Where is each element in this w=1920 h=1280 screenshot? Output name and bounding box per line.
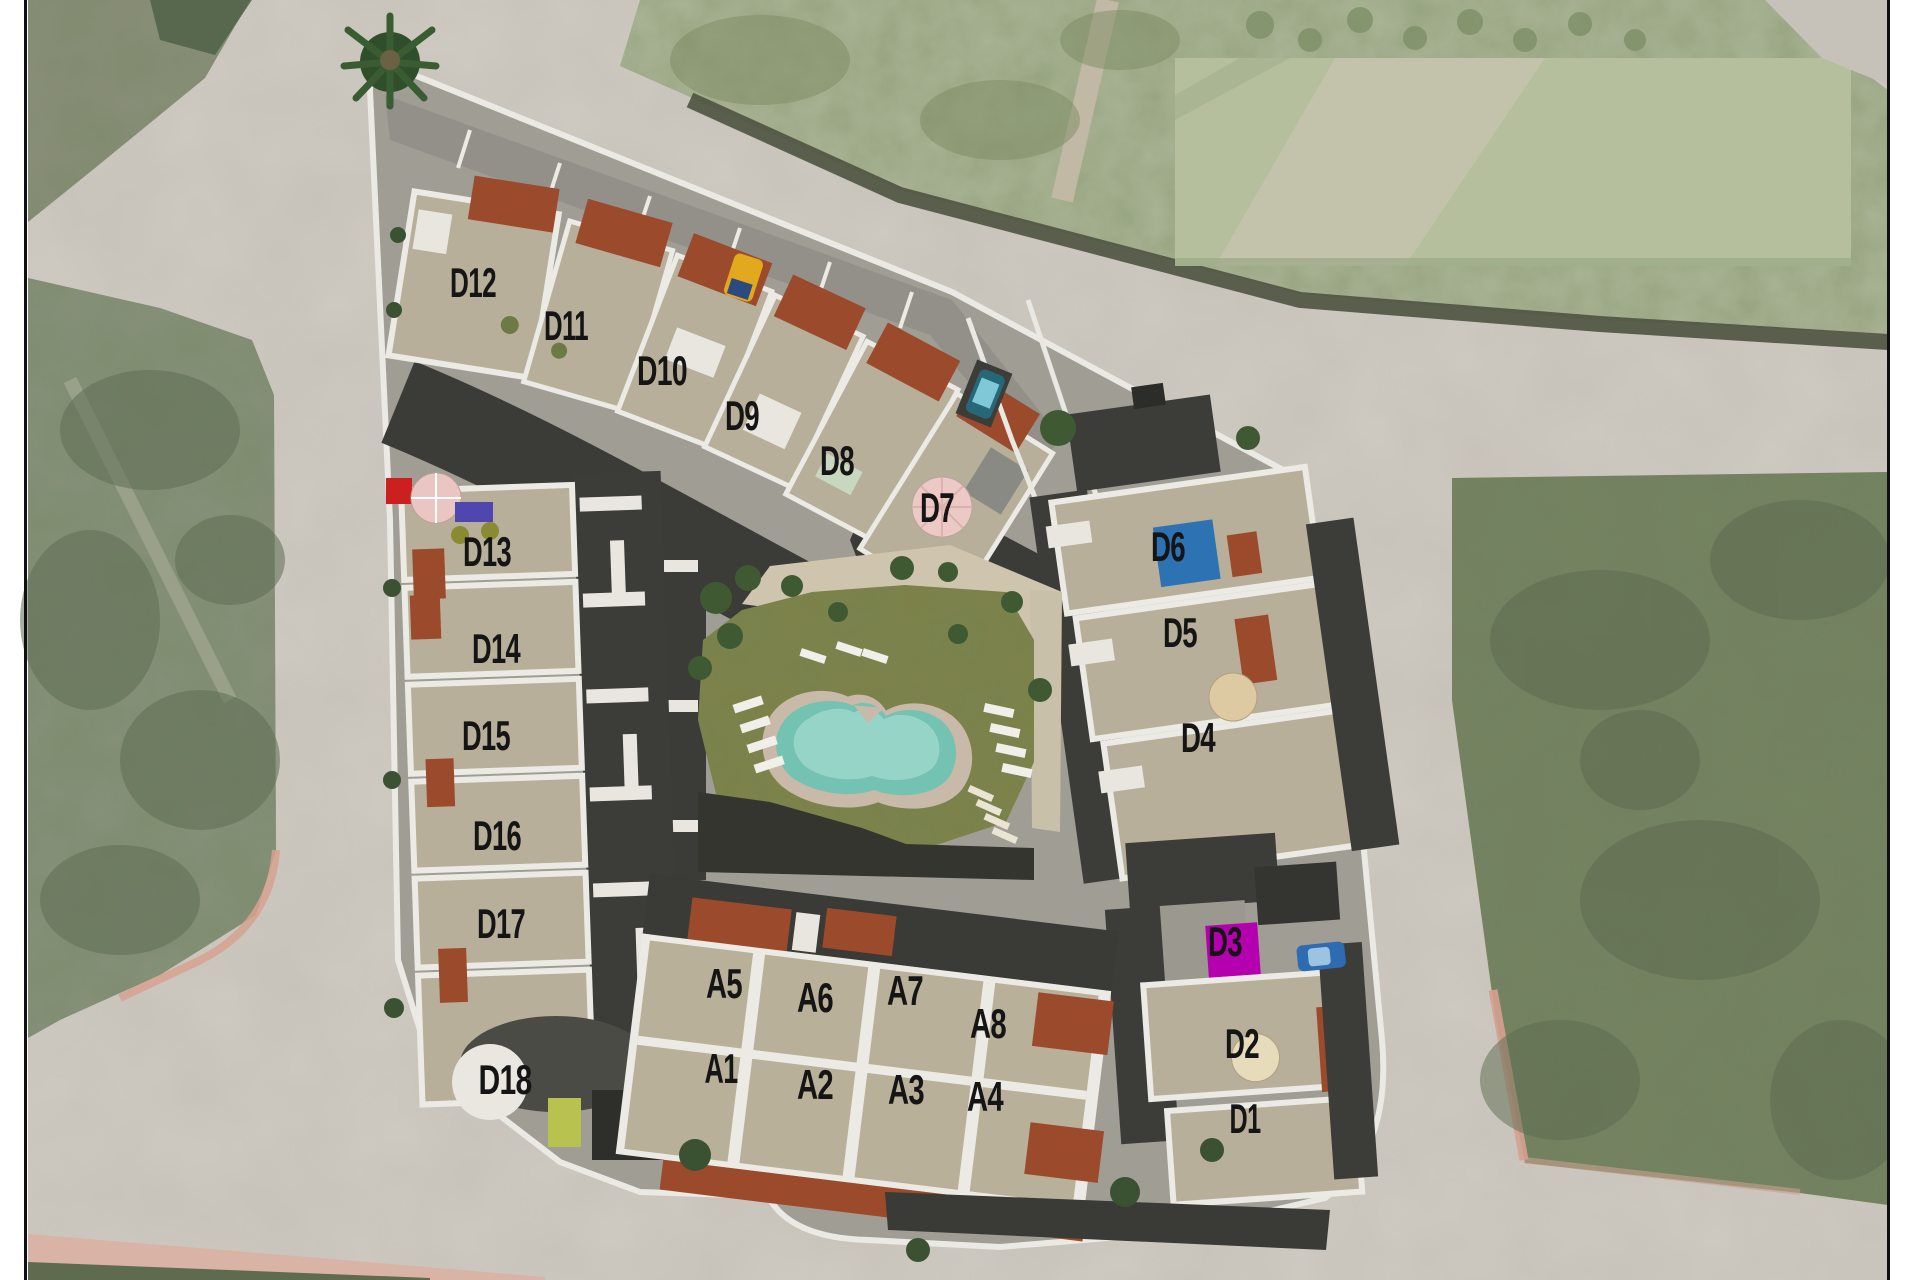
svg-text:A6: A6 xyxy=(797,974,833,1021)
svg-text:D7: D7 xyxy=(920,484,954,531)
svg-text:A2: A2 xyxy=(797,1061,833,1108)
svg-text:A7: A7 xyxy=(887,967,923,1014)
svg-text:A4: A4 xyxy=(967,1073,1004,1120)
svg-text:A3: A3 xyxy=(888,1066,924,1113)
svg-text:D6: D6 xyxy=(1151,523,1185,570)
svg-text:A5: A5 xyxy=(706,960,742,1007)
svg-text:A1: A1 xyxy=(705,1045,738,1092)
svg-text:D10: D10 xyxy=(637,347,687,394)
svg-text:D3: D3 xyxy=(1208,918,1242,965)
svg-text:D1: D1 xyxy=(1230,1095,1261,1142)
svg-text:D9: D9 xyxy=(725,392,759,439)
svg-text:D4: D4 xyxy=(1181,714,1216,761)
svg-text:D13: D13 xyxy=(463,528,511,575)
svg-text:D15: D15 xyxy=(462,712,510,759)
svg-text:D16: D16 xyxy=(473,812,521,859)
svg-text:D12: D12 xyxy=(450,259,496,306)
svg-text:A8: A8 xyxy=(970,1000,1006,1047)
svg-text:D18: D18 xyxy=(479,1056,532,1103)
svg-text:D17: D17 xyxy=(477,900,525,947)
svg-text:D5: D5 xyxy=(1163,609,1197,656)
svg-text:D8: D8 xyxy=(820,437,854,484)
svg-text:D2: D2 xyxy=(1225,1020,1259,1067)
svg-text:D11: D11 xyxy=(544,302,588,349)
svg-text:D14: D14 xyxy=(472,625,521,672)
